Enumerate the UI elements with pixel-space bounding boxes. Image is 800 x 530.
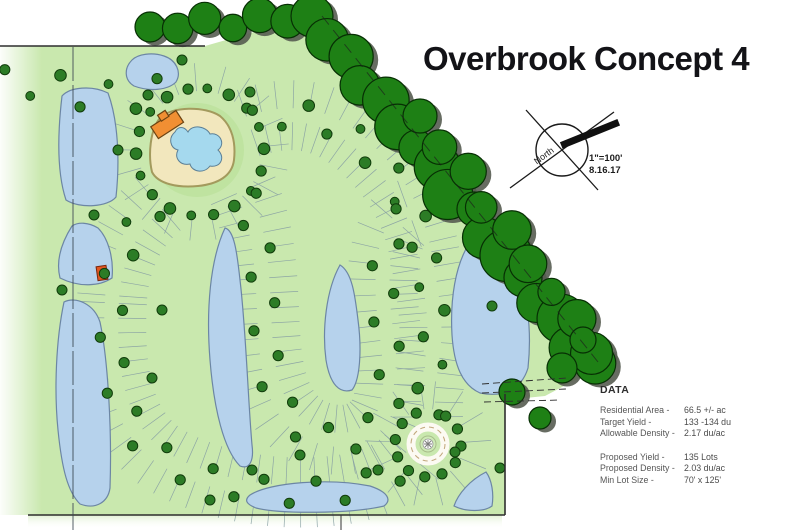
pond (126, 54, 178, 90)
data-label: Min Lot Size - (600, 475, 684, 487)
data-value: 70' x 125' (684, 475, 721, 487)
scale-note: 1"=100' 8.16.17 (589, 153, 622, 176)
data-value: 135 Lots (684, 452, 718, 464)
data-panel-heading: DATA (600, 384, 800, 396)
data-value: 133 -134 du (684, 417, 731, 429)
data-value: 66.5 +/- ac (684, 405, 726, 417)
data-label: Allowable Density - (600, 428, 684, 440)
north-arrow: North (510, 110, 620, 190)
page-title: Overbrook Concept 4 (423, 40, 749, 78)
data-value: 2.03 du/ac (684, 463, 725, 475)
scale-ratio: 1"=100' (589, 153, 622, 165)
data-row: Min Lot Size - 70' x 125' (600, 475, 800, 487)
pond (59, 88, 118, 206)
ground-fade-left (0, 44, 42, 522)
data-row: Residential Area - 66.5 +/- ac (600, 405, 800, 417)
plan-date: 8.16.17 (589, 165, 622, 177)
data-label: Proposed Yield - (600, 452, 684, 464)
site-plan-page: North Overbrook Concept 4 1"=100' 8.16.1… (0, 0, 800, 530)
roundabout-flower-icon (424, 440, 432, 448)
data-label: Target Yield - (600, 417, 684, 429)
data-row: Allowable Density - 2.17 du/ac (600, 428, 800, 440)
data-row: Proposed Density - 2.03 du/ac (600, 463, 800, 475)
ground-fade-bottom (28, 515, 502, 529)
data-label: Residential Area - (600, 405, 684, 417)
data-panel: DATA Residential Area - 66.5 +/- ac Targ… (600, 384, 800, 487)
data-row: Target Yield - 133 -134 du (600, 417, 800, 429)
data-row: Proposed Yield - 135 Lots (600, 452, 800, 464)
data-value: 2.17 du/ac (684, 428, 725, 440)
data-label: Proposed Density - (600, 463, 684, 475)
